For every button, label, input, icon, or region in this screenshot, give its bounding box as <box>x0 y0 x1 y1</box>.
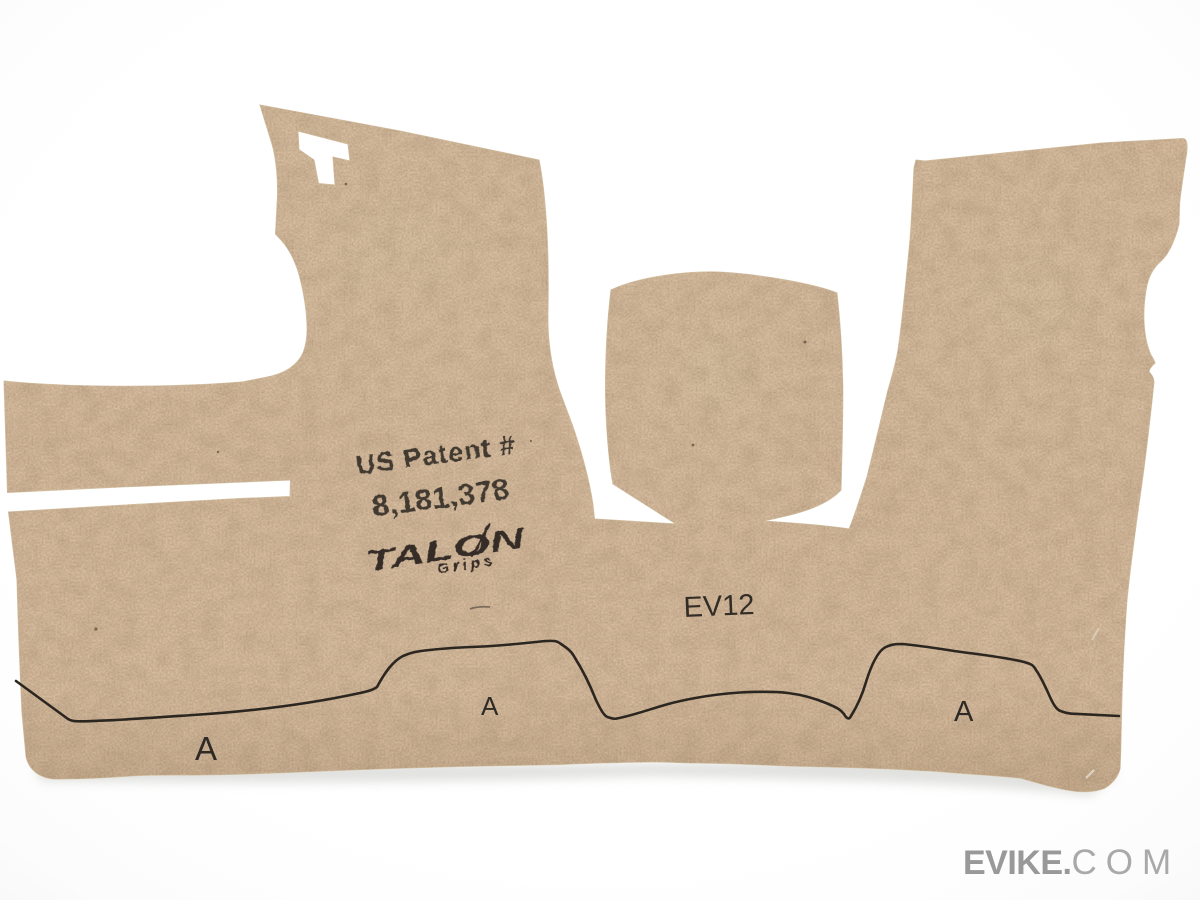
svg-text:EVIKE.COM: EVIKE.COM <box>963 843 1180 882</box>
svg-text:A: A <box>954 696 974 728</box>
svg-text:EV12: EV12 <box>683 589 755 624</box>
svg-text:A: A <box>195 730 217 767</box>
svg-text:A: A <box>481 691 499 721</box>
